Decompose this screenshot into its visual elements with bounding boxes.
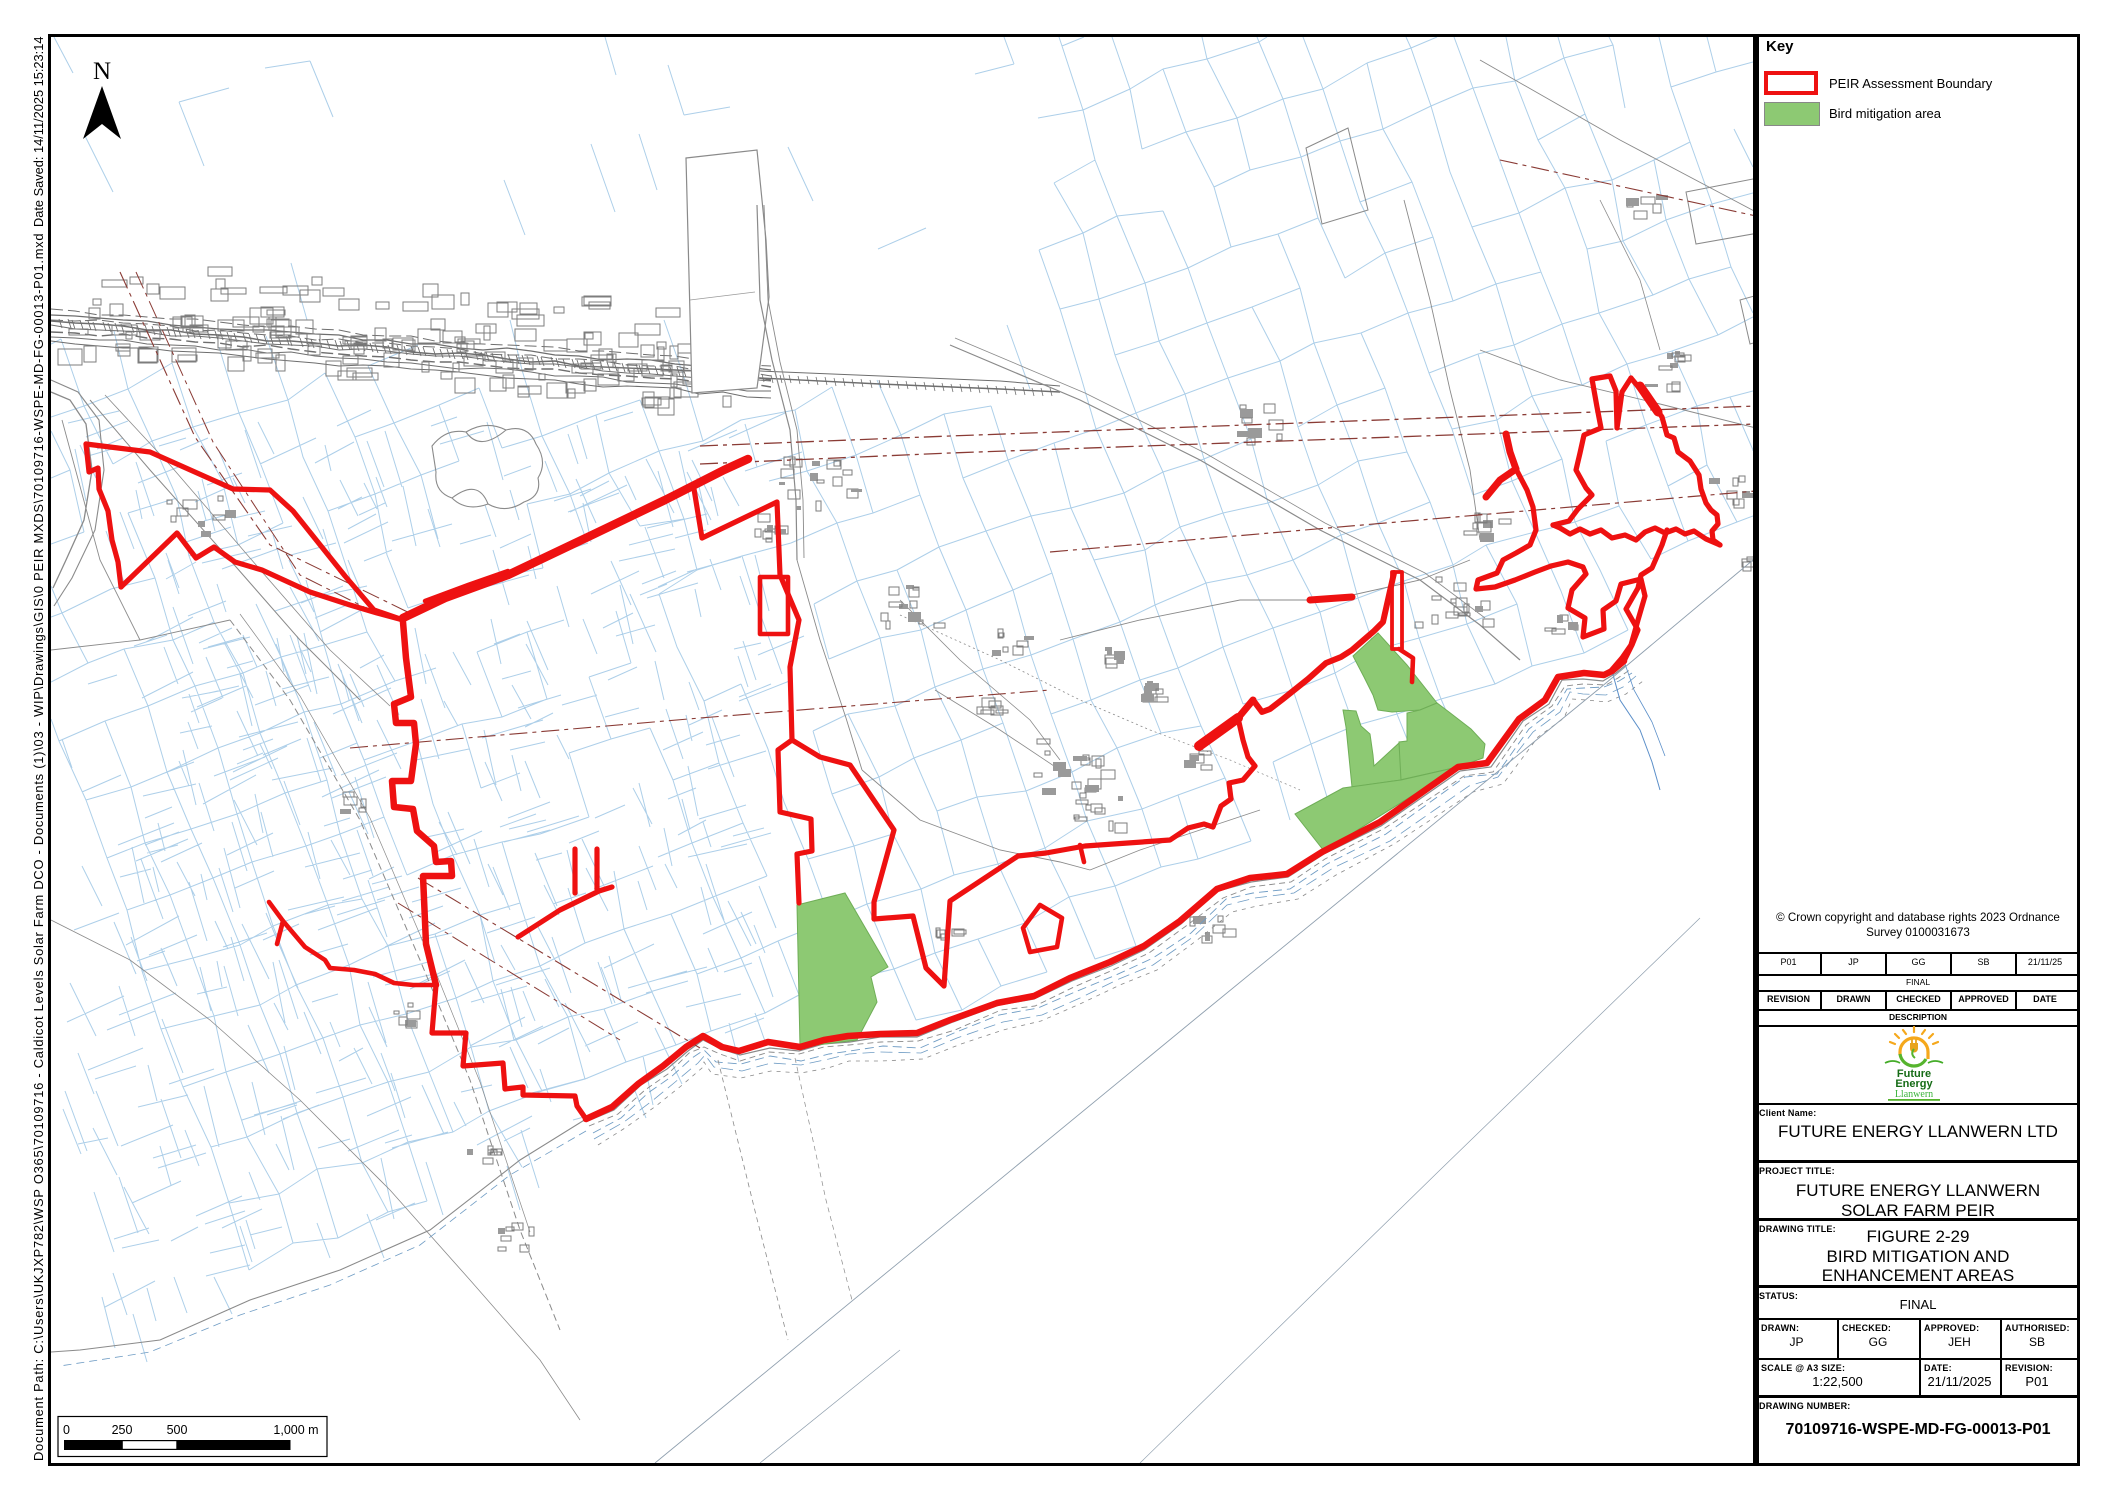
svg-text:0: 0 [63,1423,70,1437]
svg-text:250: 250 [112,1423,133,1437]
svg-text:500: 500 [167,1423,188,1437]
svg-text:1,000 m: 1,000 m [273,1423,318,1437]
svg-text:N: N [93,58,111,85]
svg-text:Llanwern: Llanwern [1895,1089,1933,1100]
